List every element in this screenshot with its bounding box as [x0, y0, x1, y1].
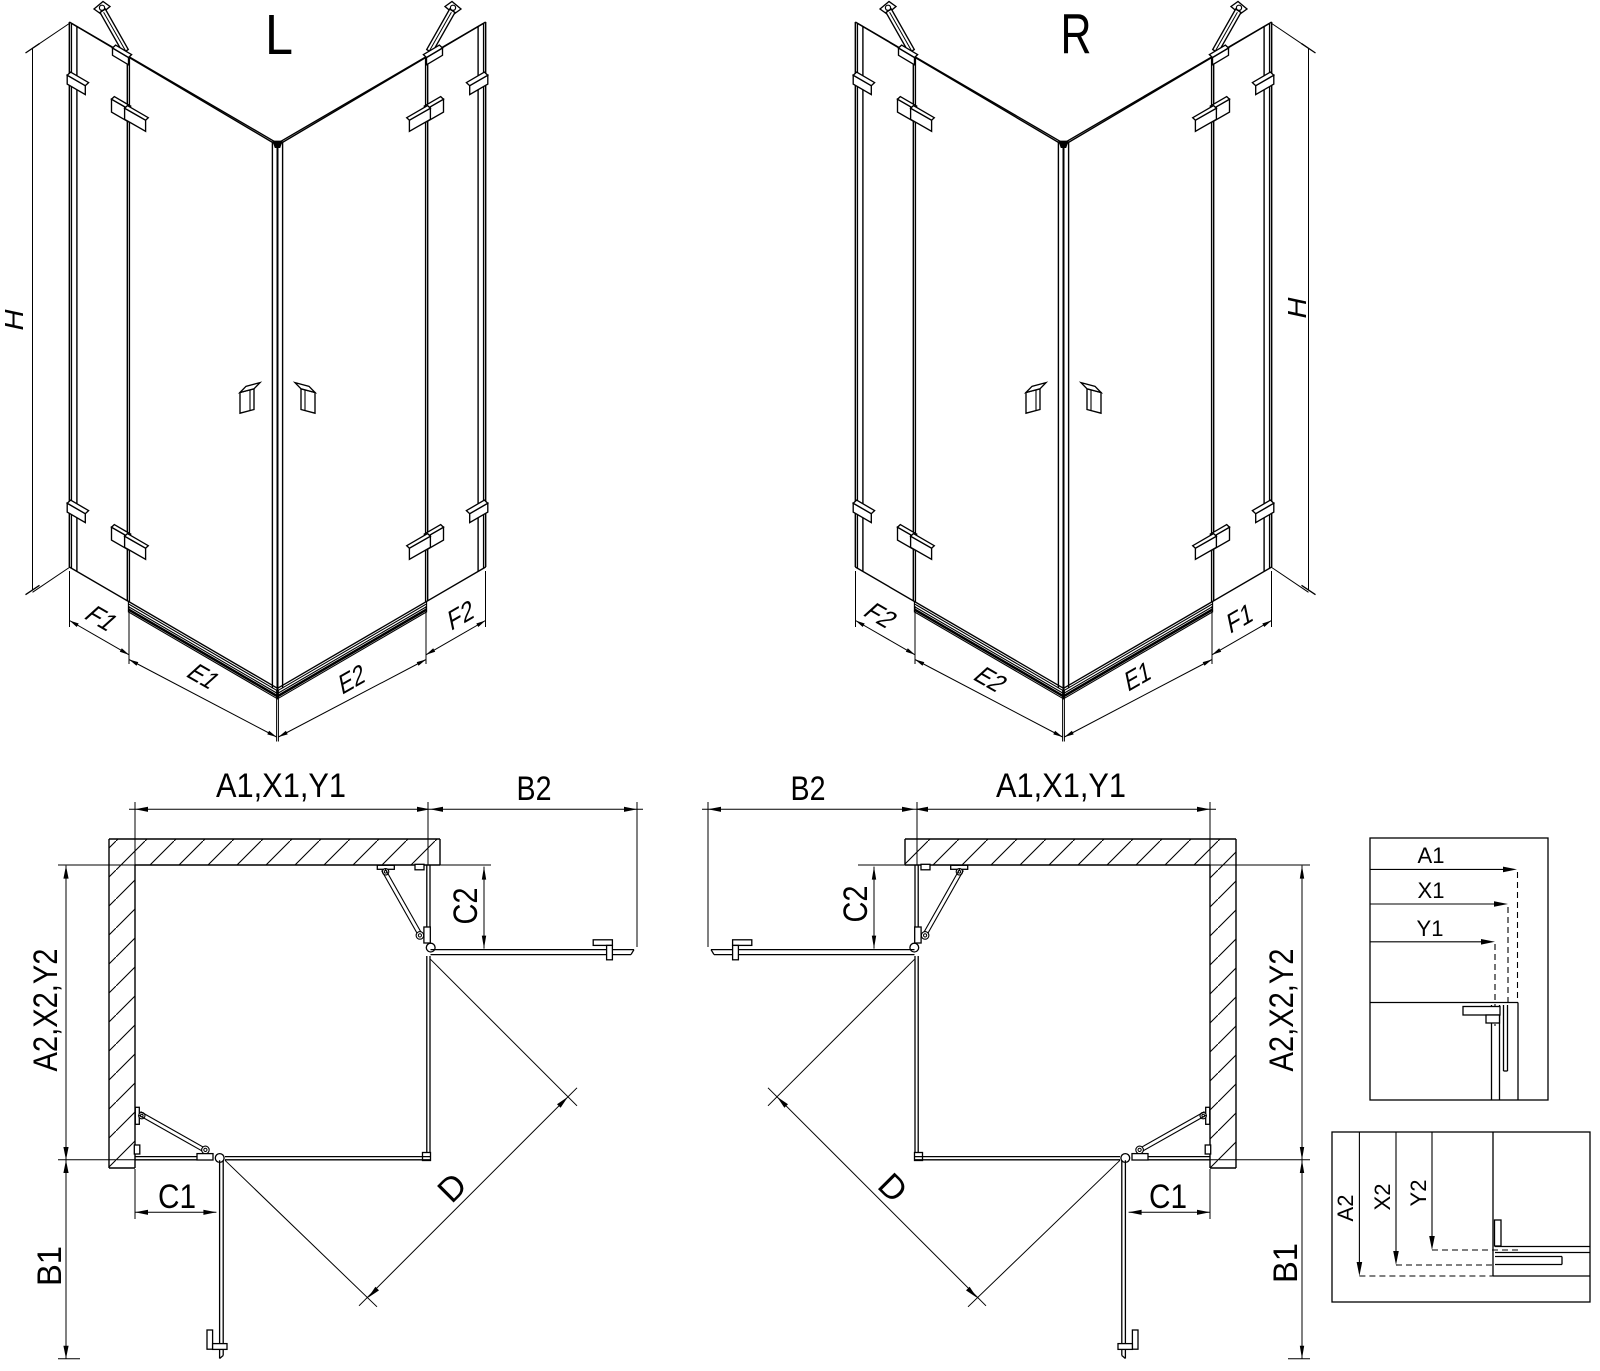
svg-text:C1: C1 — [1149, 1178, 1187, 1216]
svg-text:C1: C1 — [158, 1178, 196, 1216]
svg-text:Y1: Y1 — [1417, 916, 1444, 941]
svg-text:A2,X2,Y2: A2,X2,Y2 — [27, 949, 65, 1072]
svg-text:C2: C2 — [447, 888, 485, 925]
svg-text:B2: B2 — [517, 770, 552, 808]
svg-text:A1,X1,Y1: A1,X1,Y1 — [996, 767, 1126, 805]
svg-text:L: L — [265, 3, 293, 67]
svg-text:X2: X2 — [1370, 1184, 1395, 1211]
svg-text:A1: A1 — [1418, 843, 1445, 868]
svg-text:H: H — [0, 309, 29, 330]
svg-text:Y2: Y2 — [1406, 1180, 1431, 1207]
svg-text:R: R — [1061, 2, 1092, 66]
svg-text:A1,X1,Y1: A1,X1,Y1 — [216, 767, 346, 805]
svg-text:A2,X2,Y2: A2,X2,Y2 — [1263, 949, 1301, 1072]
svg-text:B2: B2 — [791, 770, 826, 808]
svg-text:C2: C2 — [837, 886, 875, 923]
svg-text:B1: B1 — [31, 1246, 69, 1286]
svg-text:H: H — [1282, 297, 1312, 318]
svg-text:B1: B1 — [1267, 1243, 1305, 1283]
svg-text:A2: A2 — [1333, 1195, 1358, 1222]
svg-text:X1: X1 — [1418, 878, 1445, 903]
